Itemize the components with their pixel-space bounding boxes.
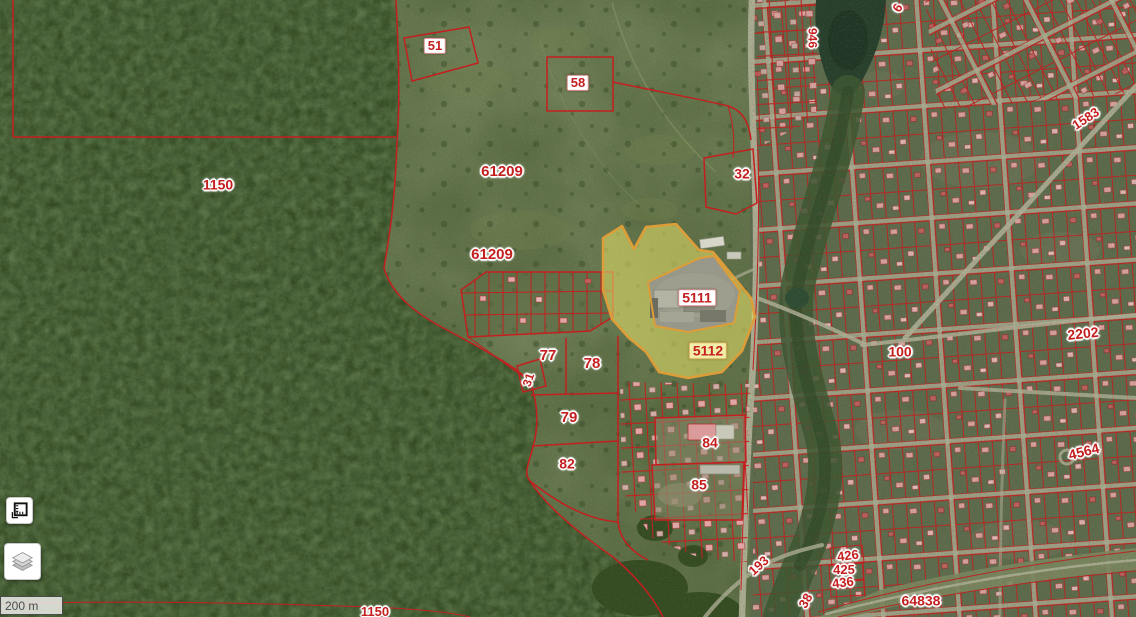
layers-icon <box>9 548 36 575</box>
layers-button[interactable] <box>4 543 41 580</box>
satellite-map <box>0 0 1136 617</box>
scale-bar-label: 200 m <box>5 599 38 613</box>
scale-bar: 200 m <box>0 596 63 615</box>
cadastral-map-app: 5158612096120911503251115112777831798284… <box>0 0 1136 617</box>
map-canvas[interactable] <box>0 0 1136 617</box>
measure-tool-button[interactable] <box>6 497 33 524</box>
measure-icon <box>10 501 29 520</box>
